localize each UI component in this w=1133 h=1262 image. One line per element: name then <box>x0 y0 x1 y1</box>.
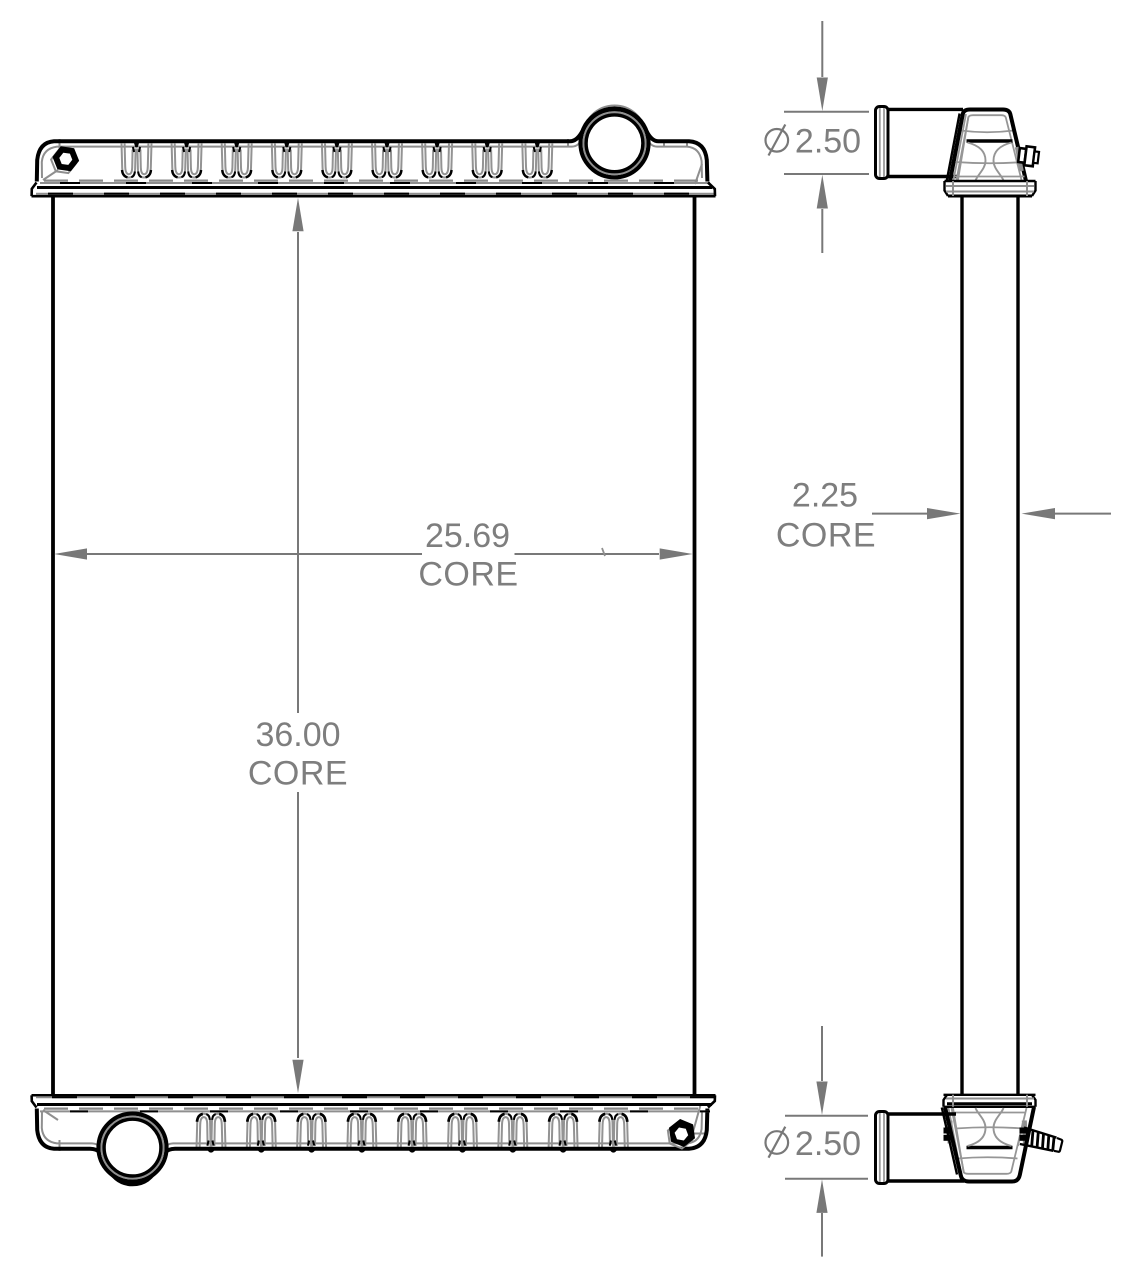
svg-text:36.00: 36.00 <box>255 716 340 754</box>
svg-text:2.25: 2.25 <box>792 477 858 515</box>
svg-text:CORE: CORE <box>248 755 348 793</box>
svg-text:2.50: 2.50 <box>795 123 861 161</box>
svg-text:CORE: CORE <box>418 556 518 594</box>
svg-text:2.50: 2.50 <box>795 1125 861 1163</box>
svg-text:CORE: CORE <box>776 517 876 555</box>
svg-text:25.69: 25.69 <box>425 517 510 555</box>
